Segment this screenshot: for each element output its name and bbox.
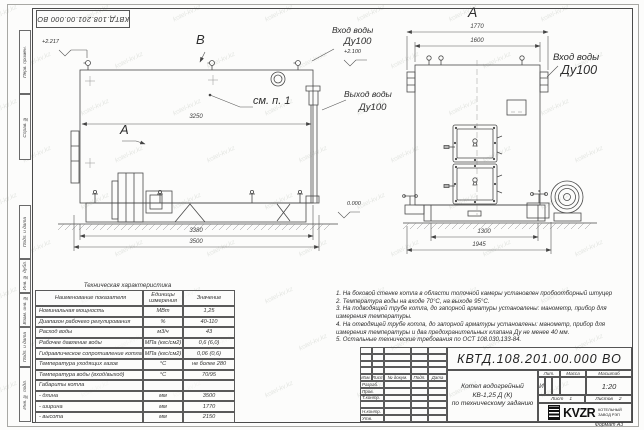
table-cell bbox=[183, 380, 235, 391]
inlet-right-label: Вход воды bbox=[553, 52, 599, 63]
titleblock-sign-label: Н.контр. bbox=[360, 408, 384, 415]
note-item: 1. На боковой стенке котла в области топ… bbox=[336, 290, 632, 298]
titleblock-cell bbox=[428, 401, 447, 408]
titleblock-cell bbox=[411, 395, 428, 402]
titleblock-cell bbox=[411, 381, 428, 388]
table-cell: - высота bbox=[35, 412, 143, 423]
titleblock-cell bbox=[384, 408, 411, 415]
table-cell: 40-110 bbox=[183, 317, 235, 328]
elevation-2217: +2.217 bbox=[42, 39, 59, 45]
titleblock-cell bbox=[372, 361, 384, 368]
lit-value: И bbox=[538, 377, 545, 395]
titleblock-cell bbox=[360, 367, 372, 374]
table-cell: 43 bbox=[183, 327, 235, 338]
upper-furnace-door bbox=[444, 125, 502, 162]
dim-1600: 1600 bbox=[457, 38, 497, 44]
table-cell: 0,6 (6,0) bbox=[183, 338, 235, 349]
note-item: 2. Температура воды на входе 70°С, на вы… bbox=[336, 298, 632, 306]
titleblock-cell bbox=[372, 367, 384, 374]
note-item: 3. На подводящей трубе котла, до запорно… bbox=[336, 305, 632, 320]
table-cell bbox=[143, 380, 183, 391]
table-cell: % bbox=[143, 317, 183, 328]
frame-column-4: Взам. инв. № bbox=[19, 293, 31, 327]
table-cell: Расход воды bbox=[35, 327, 143, 338]
frame-column-label: Инв. № подл. bbox=[23, 380, 28, 410]
lower-furnace-door bbox=[444, 164, 502, 204]
titleblock-cell bbox=[360, 361, 372, 368]
scale-header: Масштаб bbox=[586, 370, 632, 377]
titleblock-cell bbox=[384, 354, 411, 361]
titleblock-cell bbox=[411, 401, 428, 408]
table-cell: Гидравлическое сопротивление котла bbox=[35, 348, 143, 359]
sheet-cell: Лист 1 bbox=[538, 395, 585, 403]
elevation-zero: 0.000 bbox=[347, 201, 361, 207]
sheets-value: 2 bbox=[619, 397, 622, 402]
lifting-eyebolt-icon bbox=[427, 56, 524, 65]
table-cell: 2150 bbox=[183, 412, 235, 423]
drain-valve-icon bbox=[403, 195, 424, 214]
product-title-line1: Котел водогрейный bbox=[461, 383, 524, 392]
mass-value bbox=[560, 377, 586, 395]
frame-column-2: Подп. и дата bbox=[19, 205, 31, 259]
table-cell: МПа (кгс/см2) bbox=[143, 338, 183, 349]
inlet-right-dn: Ду100 bbox=[561, 63, 597, 77]
table-header-cell: Наименование показателя bbox=[35, 290, 143, 306]
titleblock-cell bbox=[428, 361, 447, 368]
table-cell: мм bbox=[143, 391, 183, 402]
frame-column-label: Подп. и дата bbox=[23, 332, 28, 362]
titleblock-cell bbox=[428, 388, 447, 395]
frame-column-label: Подп. и дата bbox=[23, 217, 28, 247]
titleblock-header-cell: Изм. bbox=[360, 374, 372, 381]
lit-header: Лит. bbox=[538, 370, 560, 377]
anchor-bolt-icon bbox=[92, 190, 303, 203]
drawing-sheet: kotel-kv.kzkotel-kv.kzkotel-kv.kzkotel-k… bbox=[0, 0, 644, 430]
titleblock-cell bbox=[428, 415, 447, 422]
titleblock-cell bbox=[372, 347, 384, 354]
frame-column-5: Подп. и дата bbox=[19, 327, 31, 367]
inlet-top-label: Вход воды bbox=[332, 25, 373, 35]
table-cell: Температура воды (вход/выход) bbox=[35, 370, 143, 381]
titleblock-cell bbox=[428, 367, 447, 374]
titleblock-cell bbox=[428, 347, 447, 354]
titleblock-cell bbox=[411, 347, 428, 354]
frame-column-label: Взам. инв. № bbox=[23, 295, 28, 324]
callout-see-note: см. п. 1 bbox=[253, 95, 290, 107]
front-view-lineart bbox=[403, 56, 597, 229]
table-cell: - ширина bbox=[35, 401, 143, 412]
dim-3380: 3380 bbox=[176, 228, 216, 234]
lit-cell-2 bbox=[545, 377, 552, 395]
titleblock-cell bbox=[384, 347, 411, 354]
sheet-label: Лист bbox=[551, 397, 563, 402]
titleblock-cell bbox=[411, 388, 428, 395]
format-label: Формат А3 bbox=[583, 422, 635, 428]
titleblock-cell bbox=[384, 361, 411, 368]
titleblock-sign-label bbox=[360, 401, 384, 408]
table-header-cell: Значение bbox=[183, 290, 235, 306]
sheet-value: 1 bbox=[569, 397, 572, 402]
note-item: 5. Остальные технические требования по О… bbox=[336, 336, 632, 344]
frame-column-label: Инв. № дубл. bbox=[23, 261, 28, 290]
titleblock-cell bbox=[411, 367, 428, 374]
dim-3250: 3250 bbox=[176, 114, 216, 120]
doc-number: КВТД.108.201.00.000 ВО bbox=[447, 347, 632, 370]
table-cell: не более 280 bbox=[183, 359, 235, 370]
outlet-label: Выход воды bbox=[344, 89, 392, 99]
table-cell: мм bbox=[143, 401, 183, 412]
table-cell: Температура уходящих газов bbox=[35, 359, 143, 370]
table-cell: 1,25 bbox=[183, 306, 235, 317]
titleblock-sign-label: Разраб. bbox=[360, 381, 384, 388]
titleblock-header-cell: Подп. bbox=[411, 374, 428, 381]
table-cell: - длина bbox=[35, 391, 143, 402]
titleblock-cell bbox=[372, 354, 384, 361]
tech-table-title: Техническая характеристика bbox=[20, 282, 235, 289]
titleblock-cell bbox=[384, 388, 411, 395]
table-cell: Габариты котла bbox=[35, 380, 143, 391]
titleblock-cell bbox=[411, 354, 428, 361]
titleblock-sign-label: Т.контр. bbox=[360, 395, 384, 402]
titleblock-cell bbox=[384, 367, 411, 374]
titleblock-cell bbox=[428, 354, 447, 361]
titleblock-cell bbox=[384, 381, 411, 388]
table-cell: Диапазон рабочего регулирования bbox=[35, 317, 143, 328]
view-label-b: В bbox=[196, 32, 205, 47]
titleblock-header-cell: № докум. bbox=[384, 374, 411, 381]
titleblock-cell bbox=[360, 354, 372, 361]
titleblock-cell bbox=[411, 408, 428, 415]
titleblock-header-cell: Лист bbox=[372, 374, 384, 381]
product-title-line3: по техническому заданию bbox=[452, 400, 533, 409]
table-cell: °С bbox=[143, 370, 183, 381]
table-cell: МВт bbox=[143, 306, 183, 317]
table-cell: 1770 bbox=[183, 401, 235, 412]
logo-sub2: ЗАВОД РЭП bbox=[598, 413, 622, 417]
frame-column-3: Инв. № дубл. bbox=[19, 259, 31, 293]
kvzr-logo-text: KVZR bbox=[563, 406, 595, 420]
titleblock-cell bbox=[384, 395, 411, 402]
table-cell: °С bbox=[143, 359, 183, 370]
side-view-lineart bbox=[58, 61, 338, 231]
titleblock-cell bbox=[384, 415, 411, 422]
titleblock-cell bbox=[428, 381, 447, 388]
tech-table: Наименование показателяЕдиницы измерения… bbox=[35, 290, 235, 423]
view-label-a-arrow: А bbox=[120, 122, 129, 137]
dim-3500: 3500 bbox=[176, 239, 216, 245]
titleblock-cell bbox=[411, 361, 428, 368]
title-block-sign-grid: Изм.Лист№ докум.Подп.ДатаРазраб.Пров.Т.к… bbox=[360, 347, 447, 422]
table-cell: МПа (кгс/см2) bbox=[143, 348, 183, 359]
sheets-label: Листов bbox=[595, 397, 612, 402]
frame-column-6: Инв. № подл. bbox=[19, 367, 31, 422]
table-cell: мм bbox=[143, 412, 183, 423]
kvzr-logo-mark-icon bbox=[548, 405, 560, 420]
kvzr-logo: KVZR КОТЕЛЬНЫЙ ЗАВОД РЭП bbox=[538, 403, 632, 422]
dim-1770: 1770 bbox=[457, 24, 497, 30]
product-title: Котел водогрейный КВ-1,25 Д (К) по техни… bbox=[447, 370, 538, 422]
sheets-cell: Листов 2 bbox=[585, 395, 632, 403]
titleblock-cell bbox=[428, 395, 447, 402]
frame-column-1: Справ. № bbox=[19, 94, 31, 160]
titleblock-sign-label: Утв. bbox=[360, 415, 384, 422]
control-panel-box bbox=[507, 100, 526, 115]
table-cell: м3/ч bbox=[143, 327, 183, 338]
titleblock-sign-label: Пров. bbox=[360, 388, 384, 395]
table-cell: 70/95 bbox=[183, 370, 235, 381]
mass-header: Масса bbox=[560, 370, 586, 377]
note-item: 4. На отводящей трубе котла, до запорной… bbox=[336, 321, 632, 336]
inlet-top-dn: Ду100 bbox=[344, 36, 371, 47]
table-cell: Номинальная мощность bbox=[35, 306, 143, 317]
scale-value: 1:20 bbox=[586, 377, 632, 395]
titleblock-header-cell: Дата bbox=[428, 374, 447, 381]
frame-column-label: Перв. примен. bbox=[23, 46, 28, 78]
frame-column-0: Перв. примен. bbox=[19, 30, 31, 94]
kvzr-logo-subtitle: КОТЕЛЬНЫЙ ЗАВОД РЭП bbox=[598, 408, 622, 417]
notes-list: 1. На боковой стенке котла в области топ… bbox=[336, 290, 632, 344]
title-block: Изм.Лист№ докум.Подп.ДатаРазраб.Пров.Т.к… bbox=[360, 347, 632, 422]
outlet-dn: Ду100 bbox=[359, 102, 386, 113]
table-cell: 3500 bbox=[183, 391, 235, 402]
titleblock-cell bbox=[360, 347, 372, 354]
blower-fan-icon bbox=[551, 181, 583, 221]
titleblock-cell bbox=[384, 401, 411, 408]
titleblock-cell bbox=[411, 415, 428, 422]
table-header-cell: Единицы измерения bbox=[143, 290, 183, 306]
dim-1300: 1300 bbox=[464, 229, 504, 235]
table-cell: Рабочее давление воды bbox=[35, 338, 143, 349]
titleblock-cell bbox=[428, 408, 447, 415]
dim-1945: 1945 bbox=[459, 242, 499, 248]
product-title-line2: КВ-1,25 Д (К) bbox=[473, 392, 513, 401]
frame-column-label: Справ. № bbox=[23, 116, 28, 138]
elevation-2100: +2.100 bbox=[344, 49, 361, 55]
table-cell: 0,06 (0,6) bbox=[183, 348, 235, 359]
front-view-title: А bbox=[468, 4, 477, 20]
lifting-eyebolt-icon bbox=[84, 61, 301, 71]
lit-cell-3 bbox=[552, 377, 560, 395]
